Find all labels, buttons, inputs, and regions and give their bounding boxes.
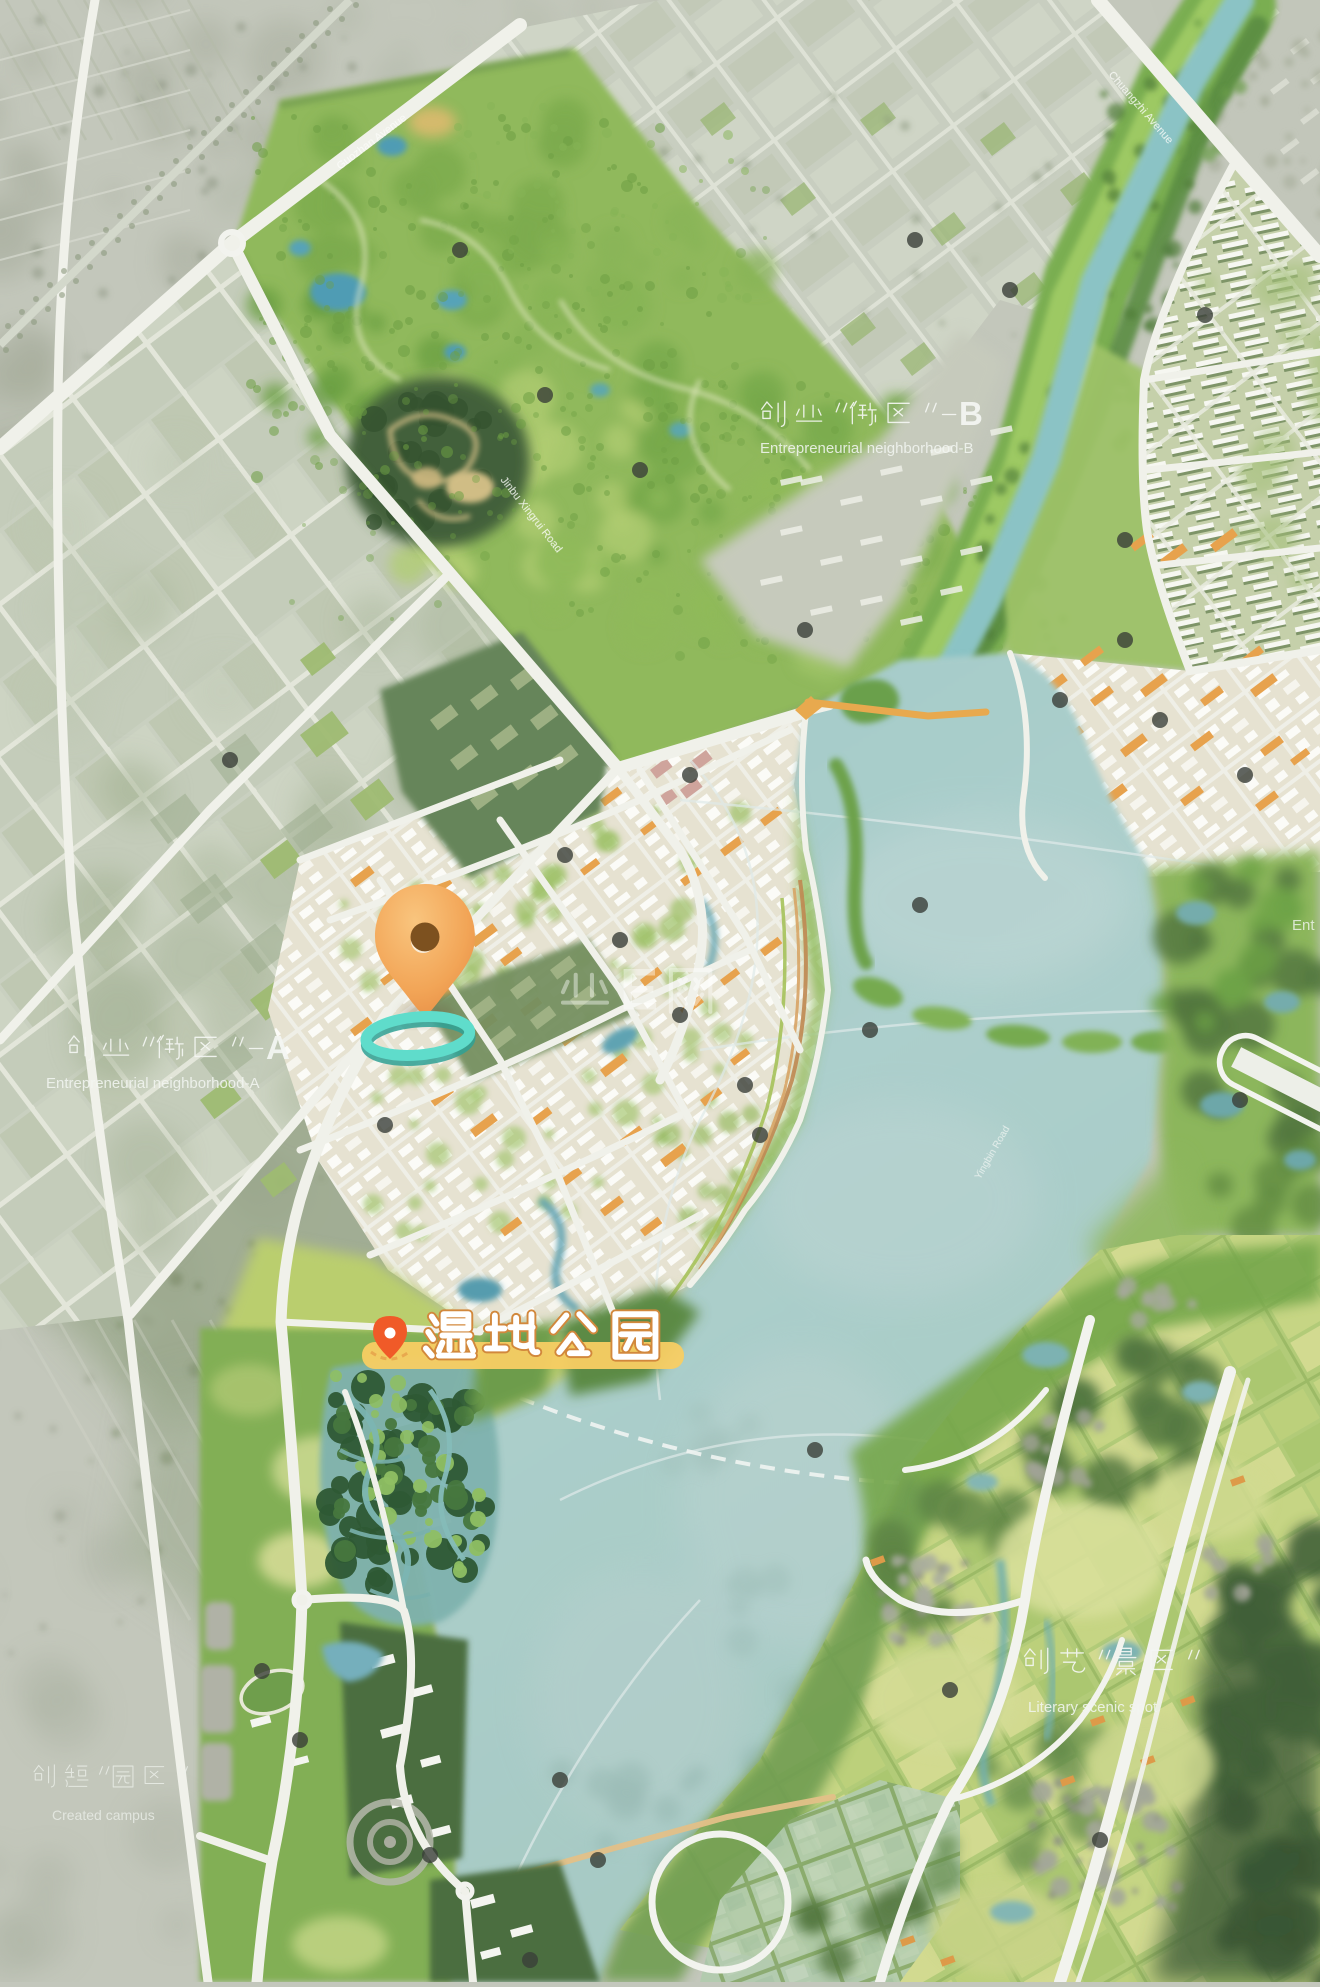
svg-text:Created campus: Created campus bbox=[52, 1807, 155, 1823]
svg-text:B: B bbox=[959, 395, 983, 432]
svg-text:Ent: Ent bbox=[1292, 917, 1315, 934]
svg-text:Literary scenic spot: Literary scenic spot bbox=[1028, 1699, 1158, 1716]
svg-text:Entrepreneurial neighborhood-B: Entrepreneurial neighborhood-B bbox=[760, 440, 973, 457]
svg-text:E: E bbox=[620, 958, 659, 1023]
svg-text:A: A bbox=[266, 1029, 290, 1066]
svg-text:Entrepreneurial neighborhood-A: Entrepreneurial neighborhood-A bbox=[46, 1075, 259, 1092]
